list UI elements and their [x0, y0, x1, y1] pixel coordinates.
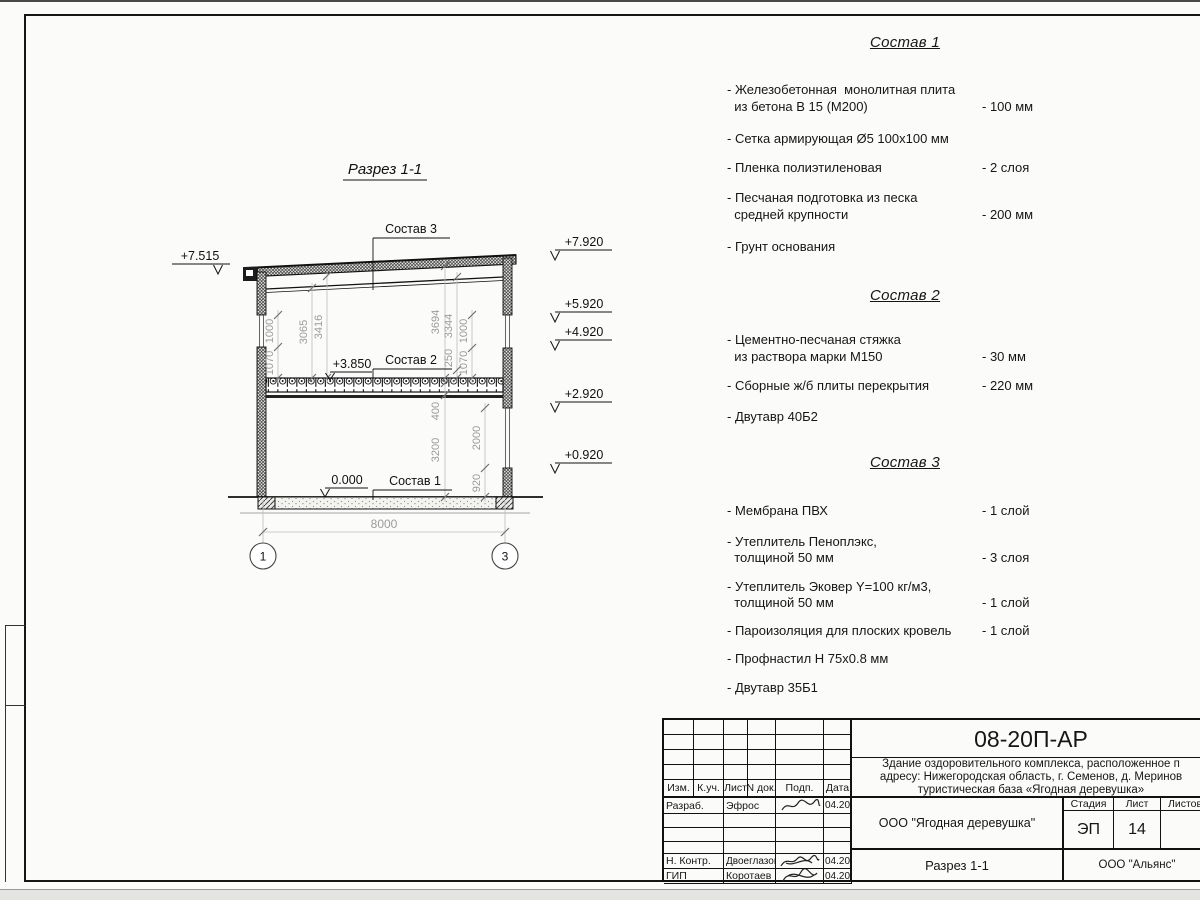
right-wall-window-upper [506, 315, 510, 348]
titleblock-cell [776, 814, 824, 828]
titleblock-cell [724, 842, 776, 854]
sheet-value: 14 [1114, 811, 1161, 848]
paper-top-edge [0, 0, 1200, 2]
dim-920: 920 [471, 474, 483, 492]
spec-item-name: - Мембрана ПВХ [727, 503, 982, 520]
callout-sostav3: Состав 3 [385, 222, 437, 236]
contractor-company: ООО "Альянс" [1064, 848, 1200, 880]
left-wall-window [260, 315, 264, 347]
signature-nkontr [776, 854, 824, 869]
spec-item-value: - 220 мм [982, 378, 1067, 395]
date-razrab: 04.20 [824, 798, 852, 814]
grid-axes: 1 3 [250, 543, 518, 569]
dim-left-1000: 1000 [264, 319, 276, 343]
titleblock-cell [748, 720, 776, 735]
titleblock-cell [664, 720, 694, 735]
spec-item: - Мембрана ПВХ- 1 слой [727, 503, 1067, 520]
titleblock-cell [724, 735, 748, 750]
dim-250: 250 [443, 349, 455, 367]
sheets-label: Листов [1161, 798, 1200, 811]
foundation-right [496, 497, 513, 509]
axis-1-label: 1 [260, 550, 267, 564]
spec-item-value: - 1 слой [982, 503, 1067, 520]
section-title-text: Разрез 1-1 [348, 161, 422, 178]
spec-item-name: - Песчаная подготовка из песка средней к… [727, 190, 982, 223]
paper-bottom-band [0, 890, 1200, 900]
name-nkontr: Двоеглазов [724, 854, 776, 869]
dimension-ticks [259, 262, 509, 536]
titleblock-cell [748, 750, 776, 765]
spec-item-name: - Пароизоляция для плоских кровель [727, 623, 982, 640]
col-list: Лист [724, 780, 748, 798]
project-description: Здание оздоровительного комплекса, распо… [852, 758, 1200, 798]
titleblock-cell [824, 720, 852, 735]
signature-razrab [776, 798, 824, 814]
spec-item-value: - 30 мм [982, 349, 1067, 366]
titleblock-cell [824, 765, 852, 780]
col-data: Дата [824, 780, 852, 798]
spec-item-name: - Сетка армирующая Ø5 100х100 мм [727, 131, 982, 148]
spec2-list: - Цементно-песчаная стяжка из раствора м… [727, 332, 1067, 425]
spec-item: - Грунт основания [727, 239, 1067, 256]
filing-margin-tick [5, 705, 25, 706]
date-nkontr: 04.20 [824, 854, 852, 869]
elev-2920: +2.920 [565, 387, 604, 401]
role-gip: ГИП [664, 869, 724, 884]
titleblock-cell [824, 814, 852, 828]
project-line-1: Здание оздоровительного комплекса, распо… [852, 758, 1200, 771]
dim-2000: 2000 [471, 426, 483, 450]
dim-left-1070: 1070 [264, 351, 276, 375]
titleblock-cell [664, 765, 694, 780]
titleblock-cell [694, 765, 724, 780]
spec-item-name: - Утеплитель Пеноплэкс, толщиной 50 мм [727, 534, 982, 567]
elev-4920: +4.920 [565, 325, 604, 339]
ground-slab [228, 497, 543, 513]
elevation-labels-right: +7.920 +5.920 +4.920 +2.920 +0.920 [565, 235, 604, 462]
elev-7515: +7.515 [181, 249, 220, 263]
dim-400: 400 [430, 402, 442, 420]
titleblock-cell [664, 842, 724, 854]
spec2-heading: Состав 2 [730, 287, 1080, 304]
spec-item: - Пароизоляция для плоских кровель- 1 сл… [727, 623, 1067, 640]
elev-0000: 0.000 [331, 473, 362, 487]
spec3-list: - Мембрана ПВХ- 1 слой - Утеплитель Пено… [727, 503, 1067, 696]
spec-item: - Сборные ж/б плиты перекрытия- 220 мм [727, 378, 1067, 395]
name-gip: Коротаев [724, 869, 776, 884]
elev-3850: +3.850 [333, 357, 372, 371]
titleblock-cell [694, 750, 724, 765]
spec-item-value: - 2 слоя [982, 160, 1067, 177]
titleblock-cell [824, 750, 852, 765]
role-nkontr: Н. Контр. [664, 854, 724, 869]
titleblock-cell [776, 765, 824, 780]
drawing-sheet: { "drawing": { "title": "Разрез 1-1", "a… [0, 0, 1200, 900]
titleblock-cell [694, 735, 724, 750]
spec-item-name: - Утеплитель Эковер Y=100 кг/м3, толщино… [727, 579, 982, 612]
dim-3065: 3065 [298, 320, 310, 344]
titleblock-cell [776, 750, 824, 765]
floor-slab [266, 378, 503, 398]
right-wall-window-lower [506, 408, 510, 468]
titleblock-cell [724, 814, 776, 828]
stage-label: Стадия [1064, 798, 1114, 811]
foundation-left [258, 497, 275, 509]
titleblock-cell [664, 750, 694, 765]
titleblock-cell [776, 828, 824, 842]
spec-item: - Утеплитель Пеноплэкс, толщиной 50 мм- … [727, 534, 1067, 567]
spec-item: - Цементно-песчаная стяжка из раствора м… [727, 332, 1067, 365]
titleblock-cell [776, 842, 824, 854]
titleblock-cell [664, 828, 724, 842]
titleblock-cell [664, 735, 694, 750]
titleblock-cell [824, 828, 852, 842]
document-number: 08-20П-АР [852, 720, 1200, 758]
titleblock-cell [748, 735, 776, 750]
axis-3-label: 3 [502, 550, 509, 564]
filing-margin-line [5, 625, 6, 882]
spec-item: - Пленка полиэтиленовая- 2 слоя [727, 160, 1067, 177]
col-izm: Изм. [664, 780, 694, 798]
spec-item-name: - Цементно-песчаная стяжка из раствора м… [727, 332, 982, 365]
elevation-marks-right [551, 250, 613, 473]
project-line-2: адресу: Нижегородская область, г. Семено… [852, 771, 1200, 784]
callout-sostav1: Состав 1 [389, 474, 441, 488]
elev-7920: +7.920 [565, 235, 604, 249]
section-drawing: Разрез 1-1 [60, 150, 660, 590]
stage-value: ЭП [1064, 811, 1114, 848]
spec-item-value: - 200 мм [982, 207, 1067, 224]
spec3-heading: Состав 3 [730, 454, 1080, 471]
titleblock-cell [748, 765, 776, 780]
right-wall [503, 258, 512, 497]
spec-item-value: - 100 мм [982, 99, 1067, 116]
elev-0920: +0.920 [565, 448, 604, 462]
spec1-heading: Состав 1 [730, 34, 1080, 51]
name-razrab: Эфрос [724, 798, 776, 814]
drawing-title: Разрез 1-1 [343, 161, 427, 180]
sheet-content-name: Разрез 1-1 [852, 848, 1064, 880]
spec-item: - Профнастил Н 75х0.8 мм [727, 651, 1067, 668]
spec-item-name: - Сборные ж/б плиты перекрытия [727, 378, 982, 395]
spec-item-name: - Двутавр 35Б1 [727, 680, 982, 697]
spec-item: - Двутавр 40Б2 [727, 409, 1067, 426]
sheet-label: Лист [1114, 798, 1161, 811]
title-block: Изм. К.уч. Лист N док. Подп. Дата Разраб… [662, 718, 1200, 882]
col-podp: Подп. [776, 780, 824, 798]
col-kuch: К.уч. [694, 780, 724, 798]
spec-item-name: - Грунт основания [727, 239, 982, 256]
title-block-main: 08-20П-АР Здание оздоровительного компле… [852, 720, 1200, 880]
spec-item-name: - Профнастил Н 75х0.8 мм [727, 651, 982, 668]
dim-right-1070: 1070 [458, 351, 470, 375]
col-ndok: N док. [748, 780, 776, 798]
spec-item-name: - Двутавр 40Б2 [727, 409, 982, 426]
dim-3694: 3694 [430, 310, 442, 334]
titleblock-cell [664, 814, 724, 828]
spec-item-name: - Железобетонная монолитная плита из бет… [727, 82, 982, 115]
titleblock-cell [824, 735, 852, 750]
filing-margin-tick [5, 625, 25, 626]
dim-3416: 3416 [313, 315, 325, 339]
callout-sostav2: Состав 2 [385, 353, 437, 367]
spec-item: - Железобетонная монолитная плита из бет… [727, 82, 1067, 115]
titleblock-cell [724, 828, 776, 842]
date-gip: 04.20 [824, 869, 852, 884]
floor-beam [266, 395, 503, 398]
spec-item: - Песчаная подготовка из песка средней к… [727, 190, 1067, 223]
client-company: ООО "Ягодная деревушка" [852, 798, 1064, 848]
titleblock-cell [776, 735, 824, 750]
titleblock-cell [724, 720, 748, 735]
title-block-revision-table: Изм. К.уч. Лист N док. Подп. Дата Разраб… [664, 720, 852, 880]
sheets-value [1161, 811, 1200, 848]
spec-item-value: - 3 слоя [982, 550, 1067, 567]
spec-item-value: - 1 слой [982, 623, 1067, 640]
dim-span-8000: 8000 [371, 517, 398, 531]
elev-5920: +5.920 [565, 297, 604, 311]
dim-right-1000: 1000 [458, 319, 470, 343]
titleblock-cell [724, 750, 748, 765]
spec-item: - Сетка армирующая Ø5 100х100 мм [727, 131, 1067, 148]
titleblock-cell [694, 720, 724, 735]
titleblock-cell [824, 842, 852, 854]
spec-item-name: - Пленка полиэтиленовая [727, 160, 982, 177]
spec-item: - Двутавр 35Б1 [727, 680, 1067, 697]
signature-gip [776, 869, 824, 884]
titleblock-cell [724, 765, 748, 780]
titleblock-cell [776, 720, 824, 735]
roof-assembly [243, 255, 516, 293]
spec-item-value: - 1 слой [982, 595, 1067, 612]
dim-3200: 3200 [430, 438, 442, 462]
project-line-3: туристическая база «Ягодная деревушка» [852, 784, 1200, 797]
spec1-list: - Железобетонная монолитная плита из бет… [727, 82, 1067, 256]
spec-item: - Утеплитель Эковер Y=100 кг/м3, толщино… [727, 579, 1067, 612]
role-razrab: Разраб. [664, 798, 724, 814]
dim-3344: 3344 [443, 314, 455, 338]
stage-sheet-table: Стадия Лист Листов ЭП 14 [1064, 798, 1200, 848]
left-wall [257, 272, 266, 497]
